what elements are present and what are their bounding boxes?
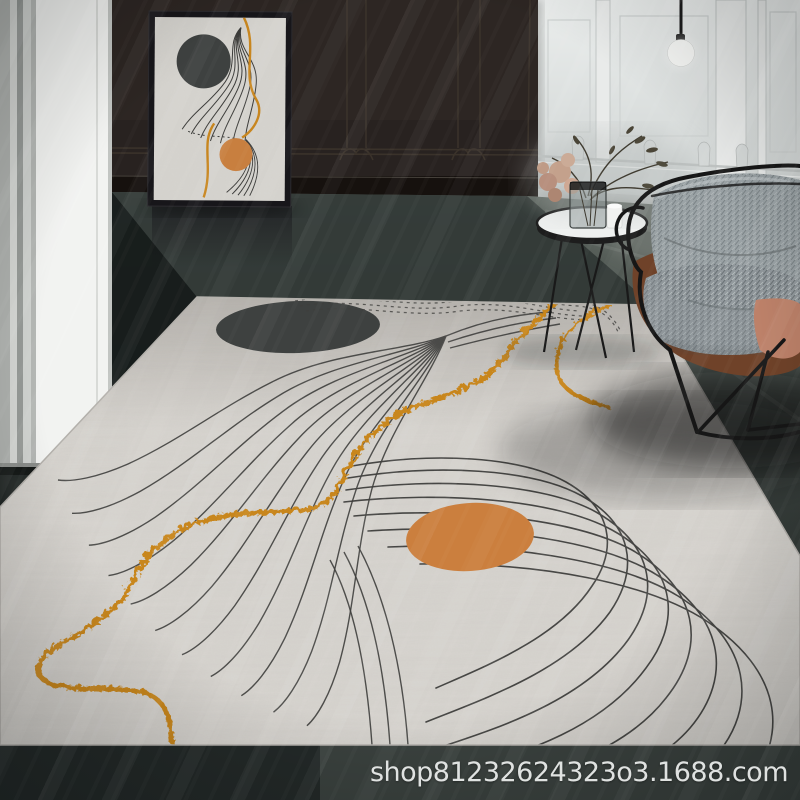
vignette <box>0 0 800 800</box>
room-scene <box>0 0 800 800</box>
watermark-shop-url: shop81232624323o3.1688.com <box>370 757 788 788</box>
product-photo: shop81232624323o3.1688.com <box>0 0 800 800</box>
